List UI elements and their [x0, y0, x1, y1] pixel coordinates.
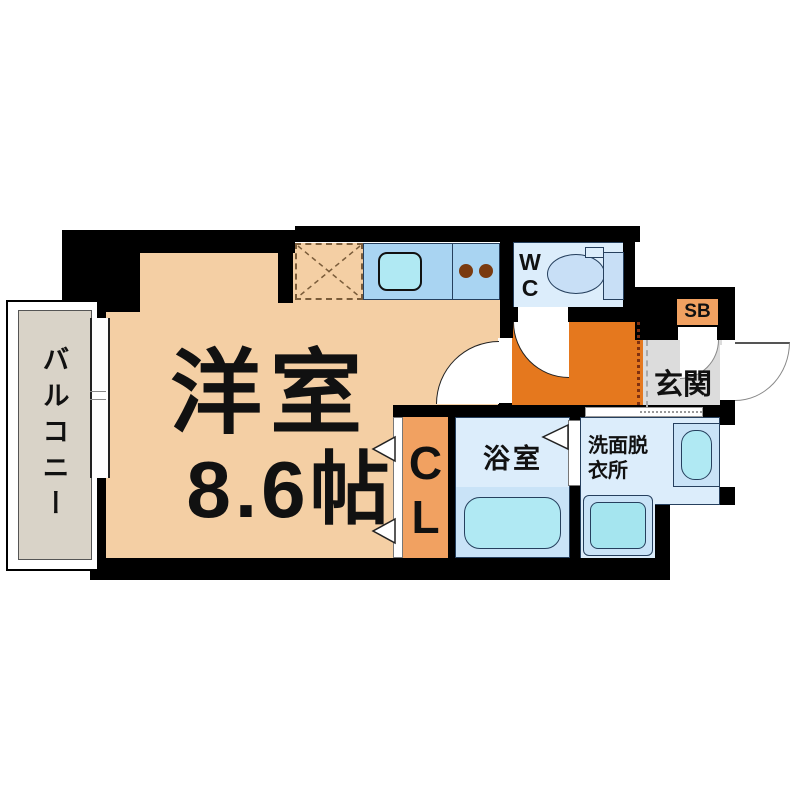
- wall-top-right: [295, 226, 640, 242]
- window: [90, 318, 110, 478]
- room-door-opening: [498, 338, 512, 403]
- wc-label-line2: C: [514, 274, 546, 302]
- shoe-box-label: SB: [675, 297, 720, 327]
- shoebox-door-opening: [678, 327, 717, 340]
- toilet-icon: [547, 254, 605, 294]
- wall-top-left: [140, 230, 295, 253]
- toilet-tank-icon: [603, 252, 624, 300]
- window-mullion: [90, 399, 106, 400]
- step-divider-dotted: [637, 322, 640, 405]
- entrance-door-arc: [735, 342, 790, 401]
- kitchen-counter-divider: [452, 243, 453, 300]
- closet-label-line1: C: [403, 438, 448, 488]
- wall-wc-right: [623, 242, 635, 322]
- main-room-label: 洋室: [120, 330, 420, 440]
- bathroom-label: 浴室: [458, 438, 568, 474]
- wall-room-hall-upper: [500, 242, 513, 338]
- stove-burner-icon: [479, 264, 493, 278]
- wall-kitchen-stub: [278, 242, 293, 303]
- refrigerator-space: [295, 243, 363, 300]
- entrance-label: 玄関: [645, 362, 721, 402]
- window-mullion: [90, 391, 106, 392]
- bathtub-icon: [464, 497, 561, 549]
- wc-label-line1: W: [514, 248, 546, 276]
- balcony-label: バルコニー: [20, 320, 88, 550]
- wall-bath-top: [393, 405, 580, 417]
- vanity-basin-icon: [681, 430, 712, 480]
- kitchen-sink: [378, 252, 422, 291]
- stove-burner-icon: [459, 264, 473, 278]
- closet-label-line2: L: [403, 492, 448, 542]
- floorplan-canvas: 洋室 8.6帖 バルコニー W C SB 玄関 C L 浴室 洗面脱 衣所: [0, 0, 800, 800]
- washroom-label-line2: 衣所: [588, 455, 668, 481]
- washing-machine-drum-icon: [590, 502, 646, 549]
- entrance-door-opening: [720, 345, 735, 400]
- sliding-door-track: [640, 411, 702, 413]
- washroom-label-line1: 洗面脱: [588, 430, 668, 456]
- toilet-button-icon: [585, 247, 604, 258]
- wc-door-opening: [518, 307, 568, 322]
- wall-bottom: [90, 558, 670, 580]
